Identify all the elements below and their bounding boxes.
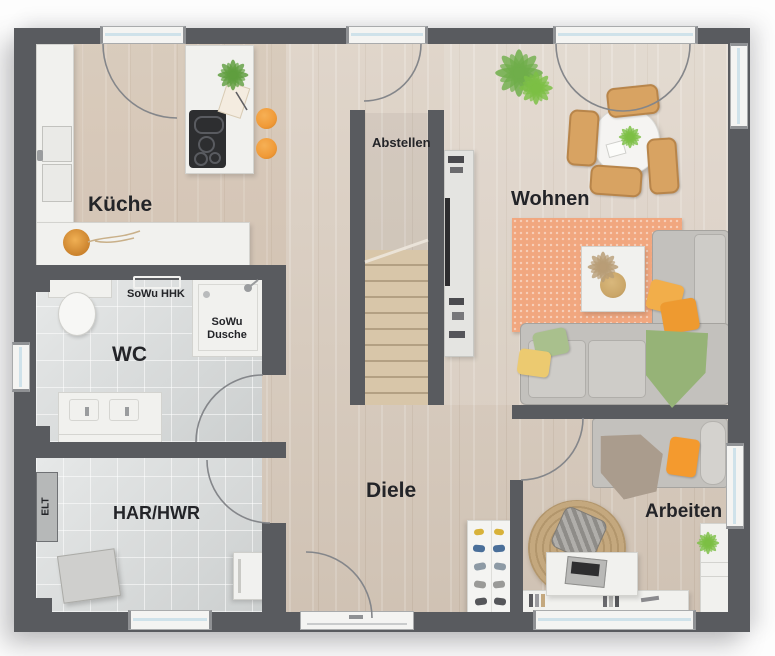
shelf-book-1	[529, 594, 533, 607]
wall-living-office	[512, 405, 728, 419]
vanity-faucet-2	[125, 407, 129, 416]
toilet-bowl	[58, 292, 96, 336]
daybed-pillow-orange	[666, 436, 701, 478]
pillow-orange-2	[659, 297, 700, 335]
entrance-door-sill	[307, 623, 407, 625]
window-living-door	[553, 26, 698, 44]
wall-stairs-left	[350, 110, 365, 405]
books-1	[448, 156, 464, 163]
cooktop-burner-2	[194, 152, 208, 166]
cabinet-line-1	[701, 562, 729, 563]
label-towel-radiator: SoWu HHK	[127, 288, 185, 300]
tv	[445, 198, 450, 286]
label-storage: Abstellen	[372, 135, 431, 150]
wall-office-hall	[510, 480, 523, 612]
window-wc	[12, 342, 30, 392]
dining-chair-right	[646, 137, 680, 195]
shoes-yellow-r	[494, 528, 505, 535]
shoes-light-l	[474, 580, 487, 589]
vanity-basin-1	[69, 399, 99, 421]
books-3	[449, 298, 464, 305]
label-electrical-text: ELT	[41, 497, 52, 515]
appliance-2-handle	[238, 559, 241, 593]
window-office-bottom	[533, 610, 696, 630]
shelf-book-3	[541, 594, 545, 607]
shoe-rack-divider	[491, 521, 492, 613]
dining-chair-top	[606, 83, 661, 118]
wall-stairs-right	[428, 110, 444, 405]
shelf-book-7	[641, 596, 659, 602]
shoes-blue-r	[493, 544, 506, 552]
vanity-basin-2	[109, 399, 139, 421]
shoes-dark-l	[475, 597, 488, 605]
shoes-blue-l	[473, 544, 486, 552]
coffee-table-tray	[600, 272, 626, 298]
window-kitchen	[100, 26, 186, 44]
label-electrical: ELT	[36, 472, 56, 540]
cooktop	[189, 110, 226, 168]
shoes-gray-l	[473, 562, 486, 571]
shoe-rack	[467, 520, 515, 614]
books-2	[450, 167, 463, 173]
wall-nib-utility	[36, 598, 52, 612]
storage-floor	[365, 113, 428, 250]
label-office: Arbeiten	[645, 501, 722, 523]
shoes-gray-r	[494, 562, 507, 571]
shoes-yellow-l	[474, 528, 485, 535]
bar-stool-2	[256, 138, 277, 159]
laptop	[565, 556, 608, 588]
sofa-cushion-2	[588, 340, 646, 398]
cooktop-burner-1	[198, 136, 215, 153]
wall-wc-hall	[262, 265, 286, 375]
wall-utility-hall	[262, 523, 286, 612]
daybed-pillow	[700, 421, 726, 485]
window-hall-top	[346, 26, 428, 44]
vanity-faucet-1	[85, 407, 89, 416]
label-hall: Diele	[366, 479, 416, 503]
vanity-counter	[58, 392, 162, 444]
label-utility: HAR/HWR	[113, 503, 200, 524]
wall-left	[14, 28, 36, 632]
window-utility	[128, 610, 212, 630]
label-shower: SoWu Dusche	[196, 316, 258, 342]
cooktop-burner-3	[209, 152, 221, 164]
kitchen-sink-2	[42, 164, 72, 202]
shoes-light-r	[493, 580, 506, 588]
pillow-yellow	[516, 348, 551, 378]
shower-drain	[203, 291, 210, 298]
wall-wc-utility	[14, 442, 286, 458]
office-cabinet	[700, 523, 730, 615]
floor-plan: Küche WC HAR/HWR Diele Abstellen Wohnen …	[0, 0, 775, 656]
books-5	[449, 331, 465, 338]
vanity-edge	[59, 434, 161, 435]
dining-chair-bottom	[589, 164, 643, 198]
bar-stool-1	[256, 108, 277, 129]
shelf-book-2	[535, 594, 539, 607]
cabinet-line-2	[701, 576, 729, 577]
stair-treads	[365, 250, 428, 405]
label-kitchen: Küche	[88, 193, 152, 217]
entrance-door	[300, 611, 414, 630]
label-living: Wohnen	[511, 188, 590, 211]
kitchen-faucet	[37, 150, 43, 161]
label-wc: WC	[112, 343, 147, 367]
fruit-bowl	[63, 229, 90, 256]
window-living-right	[730, 43, 748, 129]
cooktop-burner-oval	[194, 116, 224, 134]
wall-nib-wc-bottom	[36, 426, 50, 442]
laptop-screen	[571, 561, 600, 576]
books-4	[452, 312, 464, 320]
entrance-door-handle	[349, 615, 363, 619]
shoes-dark-r	[494, 597, 507, 605]
dining-chair-left	[566, 109, 600, 167]
kitchen-sink-1	[42, 126, 72, 162]
wall-nib-wc-top	[36, 276, 50, 292]
appliance-1	[57, 548, 121, 604]
window-office-right	[726, 443, 744, 529]
